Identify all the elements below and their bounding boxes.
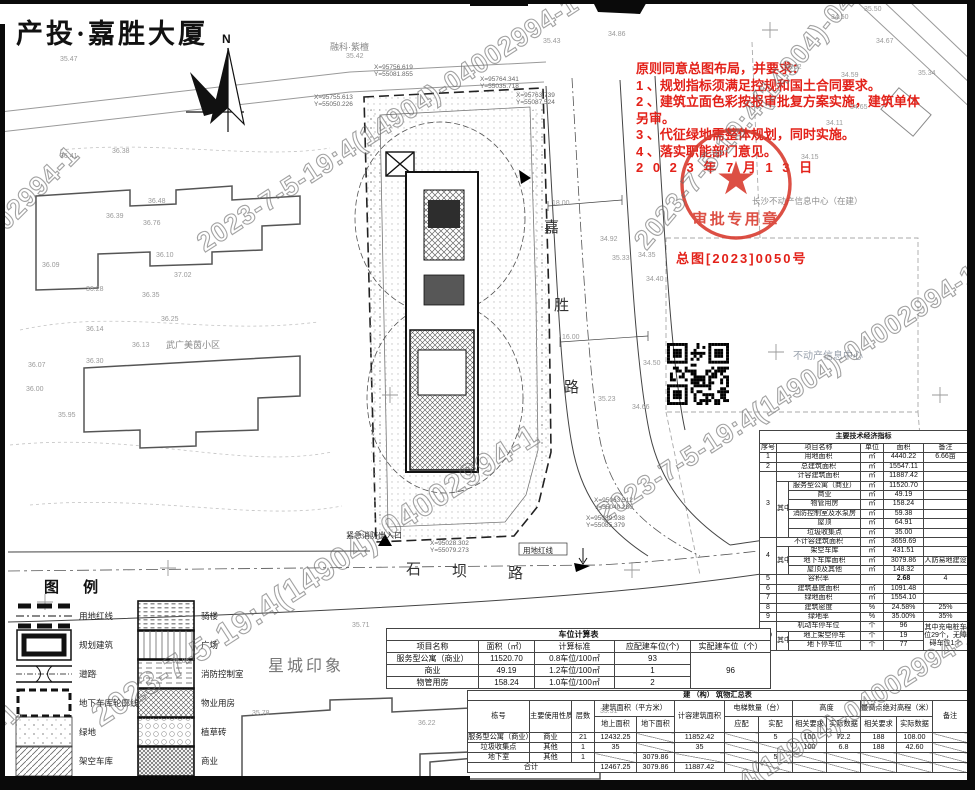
table-cell: 35% <box>924 613 968 622</box>
table-cell: 49.19 <box>479 665 535 677</box>
table-cell: 11852.42 <box>675 733 725 743</box>
table-cell: 11887.42 <box>675 763 725 773</box>
sheet-border-left <box>0 24 5 790</box>
table-row: 垃圾收集点㎡35.00 <box>760 528 968 537</box>
table-cell: 地下面积 <box>637 717 675 733</box>
table-cell: 合计 <box>468 763 595 773</box>
table-cell: ㎡ <box>861 509 884 518</box>
table-cell: 158.24 <box>479 677 535 689</box>
table-cell: 4 <box>924 575 968 584</box>
table-cell: 5 <box>759 753 793 763</box>
table-cell: 59.38 <box>884 509 924 518</box>
table-cell: 项目名称 <box>387 641 479 653</box>
legend-item-label: 植草砖 <box>201 726 227 738</box>
table-cell <box>637 733 675 743</box>
table-cell: 93 <box>615 653 691 665</box>
table-cell: 主要技术经济指标 <box>760 431 968 444</box>
indicator-table: 主要技术经济指标序号项目名称单位面积备注1用地面积㎡4440.226.66亩2总… <box>759 430 967 651</box>
table-cell: 35 <box>595 743 637 753</box>
table-cell: 应配建车位(个) <box>615 641 691 653</box>
legend: 图 例 用地红线规划建筑道路地下车库轮廓线绿地架空车库 骑楼广场消防控制室物业用… <box>14 576 252 775</box>
table-cell: ㎡ <box>861 584 884 593</box>
table-cell: 19 <box>884 631 924 640</box>
table-cell: 服务型公寓（商业） <box>468 733 530 743</box>
table-cell: 其他 <box>530 743 572 753</box>
legend-item-label: 规划建筑 <box>79 639 113 651</box>
table-cell: 相关要求 <box>861 717 897 733</box>
table-cell: 实际数据 <box>897 717 933 733</box>
table-cell: 188 <box>861 743 897 753</box>
table-cell <box>725 733 759 743</box>
table-cell: 高度 <box>793 701 861 717</box>
table-cell: 计算标准 <box>535 641 615 653</box>
table-cell: 建筑密度 <box>777 603 861 612</box>
table-cell: ㎡ <box>861 472 884 481</box>
table-cell: 1 <box>572 753 595 763</box>
table-cell: 垃圾收集点 <box>789 528 861 537</box>
table-row: 商业㎡49.19 <box>760 490 968 499</box>
table-cell: 个 <box>861 631 884 640</box>
legend-item-label: 地下车库轮廓线 <box>79 697 139 709</box>
approval-line: 1 、规划指标须满足控规和国土合同要求。 <box>636 78 975 95</box>
table-cell: 11520.70 <box>884 481 924 490</box>
table-row: 主要技术经济指标 <box>760 431 968 444</box>
sheet-border-top <box>0 0 975 4</box>
table-cell: 3659.69 <box>884 537 924 546</box>
table-cell: 面积 <box>884 444 924 453</box>
table-cell: 4440.22 <box>884 453 924 462</box>
table-cell: ㎡ <box>861 547 884 556</box>
table-cell <box>725 763 759 773</box>
table-cell <box>793 763 827 773</box>
table-cell: 实际数据 <box>827 717 861 733</box>
table-cell: 24.58% <box>884 603 924 612</box>
table-cell: 层数 <box>572 701 595 733</box>
table-row: 车位计算表 <box>387 629 771 641</box>
table-row: 地下室其他13079.865 <box>468 753 968 763</box>
table-cell: 序号 <box>760 444 777 453</box>
table-row: 2总建筑面积㎡15547.11 <box>760 462 968 471</box>
table-row: 1用地面积㎡4440.226.66亩 <box>760 453 968 462</box>
table-cell: 商业 <box>789 490 861 499</box>
table-cell <box>924 594 968 603</box>
table-cell: 屋顶及其他 <box>789 566 861 575</box>
table-cell: 3079.86 <box>637 753 675 763</box>
table-cell: 77 <box>884 641 924 650</box>
site-area <box>355 88 648 564</box>
table-cell <box>933 733 968 743</box>
table-cell: 6 <box>760 584 777 593</box>
table-cell: 其中 <box>777 631 789 650</box>
table-cell: 屋顶 <box>789 519 861 528</box>
table-cell: 100 <box>793 743 827 753</box>
table-cell: 备注 <box>933 701 968 733</box>
table-cell: 地下室 <box>468 753 530 763</box>
table-row: 10机动车停车位个96其中充电桩车位29个，无障碍车位1个 <box>760 622 968 631</box>
table-cell <box>725 753 759 763</box>
table-cell: 消防控制室及水泵房 <box>789 509 861 518</box>
neighbor-left-label: 武广美茵小区 <box>166 338 220 351</box>
table-cell: 49.19 <box>884 490 924 499</box>
building-summary-table: 建 （构） 筑物汇总表栋号主要使用性质层数建筑面积（平方米）计容建筑面积电梯数量… <box>467 690 967 773</box>
table-cell: 面积（㎡） <box>479 641 535 653</box>
table-cell: ㎡ <box>861 519 884 528</box>
table-cell: 96 <box>884 622 924 631</box>
table-cell <box>924 500 968 509</box>
table-cell: 个 <box>861 622 884 631</box>
table-cell: 用地面积 <box>777 453 861 462</box>
table-cell: 地下停车位 <box>789 641 861 650</box>
table-cell: 15547.11 <box>884 462 924 471</box>
table-cell: 物管用房 <box>387 677 479 689</box>
table-cell <box>924 490 968 499</box>
table-cell: 1091.48 <box>884 584 924 593</box>
table-cell <box>924 584 968 593</box>
table-cell <box>725 743 759 753</box>
table-cell: 21 <box>572 733 595 743</box>
page-title: 产投·嘉胜大厦 <box>16 12 208 51</box>
table-cell: 2.68 <box>884 575 924 584</box>
table-row: 合计12467.253079.8611887.42 <box>468 763 968 773</box>
table-cell: % <box>861 603 884 612</box>
table-cell <box>759 743 793 753</box>
table-cell: 11887.42 <box>884 472 924 481</box>
table-cell: 3079.86 <box>637 763 675 773</box>
table-cell: 35 <box>675 743 725 753</box>
table-cell: 架空车库 <box>789 547 861 556</box>
table-cell: 42.60 <box>897 743 933 753</box>
table-row: 6建筑基底面积㎡1091.48 <box>760 584 968 593</box>
legend-swatch-icon <box>14 743 74 779</box>
table-cell <box>861 763 897 773</box>
table-cell: ㎡ <box>861 500 884 509</box>
table-cell: 96 <box>691 653 771 689</box>
table-cell <box>759 763 793 773</box>
table-cell: 商业 <box>530 733 572 743</box>
table-cell: 人防易地建设 <box>924 556 968 565</box>
table-cell <box>924 519 968 528</box>
approval-line: 2 、建筑立面色彩按报审批复方案实施，建筑单体 <box>636 94 975 111</box>
table-cell: 电梯数量（台） <box>725 701 793 717</box>
table-cell: 总建筑面积 <box>777 462 861 471</box>
table-cell: 158.24 <box>884 500 924 509</box>
table-cell: 垃圾收集点 <box>468 743 530 753</box>
table-cell <box>924 566 968 575</box>
table-cell: 35.00 <box>884 528 924 537</box>
table-cell: ㎡ <box>861 453 884 462</box>
legend-item-label: 道路 <box>79 668 96 680</box>
table-cell: 实配建车位（个） <box>691 641 771 653</box>
table-cell: 12467.25 <box>595 763 637 773</box>
table-cell <box>897 753 933 763</box>
table-cell <box>637 743 675 753</box>
table-cell: 6.8 <box>827 743 861 753</box>
legend-item-label: 绿地 <box>79 726 96 738</box>
table-cell <box>924 509 968 518</box>
table-cell: 商业 <box>387 665 479 677</box>
table-cell: 1.0车位/100㎡ <box>535 677 615 689</box>
table-cell: 个 <box>861 641 884 650</box>
table-row: 3计容建筑面积㎡11887.42 <box>760 472 968 481</box>
table-cell <box>924 462 968 471</box>
table-cell: 12432.25 <box>595 733 637 743</box>
legend-item: 商业 <box>136 746 252 775</box>
qr-code <box>667 343 729 405</box>
table-cell <box>827 753 861 763</box>
table-cell: 100 <box>793 733 827 743</box>
table-cell: 实配 <box>759 717 793 733</box>
table-cell <box>861 753 897 763</box>
table-cell <box>897 763 933 773</box>
site-plan-document: { "title": "产投·嘉胜大厦", "watermark_text": … <box>0 0 975 790</box>
table-cell: 地上面积 <box>595 717 637 733</box>
table-cell <box>924 528 968 537</box>
table-cell: 1554.10 <box>884 594 924 603</box>
north-label: N <box>222 32 231 46</box>
table-cell: 1 <box>615 665 691 677</box>
table-row: 地下车库面积㎡3079.86人防易地建设 <box>760 556 968 565</box>
legend-item: 架空车库 <box>14 746 136 775</box>
table-cell: 7 <box>760 594 777 603</box>
table-cell: 25% <box>924 603 968 612</box>
stamp-star-icon: ★ <box>715 152 756 204</box>
table-cell: 建筑基底面积 <box>777 584 861 593</box>
neighbor-top-label: 融科·紫檀 <box>330 40 369 53</box>
table-cell <box>924 537 968 546</box>
table-row: 垃圾收集点其他135351006.818842.60 <box>468 743 968 753</box>
neighbor-bottom-label: 星城印象 <box>268 652 344 676</box>
table-cell: 容积率 <box>777 575 861 584</box>
table-cell: 5 <box>760 575 777 584</box>
table-cell: 148.32 <box>884 566 924 575</box>
table-cell: 431.51 <box>884 547 924 556</box>
sheet-border-bottom-thick <box>0 776 470 790</box>
table-cell: 项目名称 <box>777 444 861 453</box>
table-cell: 3079.86 <box>884 556 924 565</box>
table-cell: ㎡ <box>861 490 884 499</box>
legend-item-label: 商业 <box>201 755 218 767</box>
table-row: 屋顶及其他㎡148.32 <box>760 566 968 575</box>
table-cell: 机动车停车位 <box>777 622 861 631</box>
table-cell: 计容建筑面积 <box>675 701 725 733</box>
table-cell: 不计容建筑面积 <box>777 537 861 546</box>
table-cell: 11520.70 <box>479 653 535 665</box>
table-row: 其中架空车库㎡431.51 <box>760 547 968 556</box>
table-row: 其中服务型公寓（商业）㎡11520.70 <box>760 481 968 490</box>
table-cell: 1 <box>572 743 595 753</box>
table-cell <box>933 753 968 763</box>
legend-item-label: 物业用房 <box>201 697 235 709</box>
table-cell: ㎡ <box>861 566 884 575</box>
table-cell: 栋号 <box>468 701 530 733</box>
table-cell <box>675 753 725 763</box>
legend-item-label: 广场 <box>201 639 218 651</box>
table-cell <box>827 763 861 773</box>
table-row: 建 （构） 筑物汇总表 <box>468 691 968 701</box>
legend-item-label: 骑楼 <box>201 610 218 622</box>
legend-swatch-icon <box>136 743 196 779</box>
table-cell: 绿地面积 <box>777 594 861 603</box>
table-row: 物管用房㎡158.24 <box>760 500 968 509</box>
table-cell <box>924 481 968 490</box>
table-cell: 备注 <box>924 444 968 453</box>
table-row: 服务型公寓（商业）商业2112432.2511852.42510072.2188… <box>468 733 968 743</box>
table-cell <box>793 753 827 763</box>
table-cell: 绿地率 <box>777 613 861 622</box>
table-row: 序号项目名称单位面积备注 <box>760 444 968 453</box>
table-cell: 相关要求 <box>793 717 827 733</box>
table-row: 8建筑密度%24.58%25% <box>760 603 968 612</box>
parking-table: 车位计算表项目名称面积（㎡）计算标准应配建车位(个)实配建车位（个）服务型公寓（… <box>386 628 770 689</box>
table-cell: 地上架空停车 <box>789 631 861 640</box>
legend-item-label: 架空车库 <box>79 755 113 767</box>
approval-stamp: ★ 审批专用章 <box>660 118 816 258</box>
table-cell: % <box>861 613 884 622</box>
table-cell: 9 <box>760 613 777 622</box>
table-cell: 物管用房 <box>789 500 861 509</box>
table-cell <box>595 753 637 763</box>
sheet-border-right <box>967 0 975 790</box>
table-cell: ㎡ <box>861 594 884 603</box>
table-row: 消防控制室及水泵房㎡59.38 <box>760 509 968 518</box>
info-center-label: 不动产信息中心 <box>793 347 863 362</box>
table-cell: ㎡ <box>861 528 884 537</box>
table-cell: 单位 <box>861 444 884 453</box>
approval-line: 原则同意总图布局，并要求： <box>636 61 975 78</box>
table-cell: ㎡ <box>861 556 884 565</box>
table-cell: 服务型公寓（商业） <box>789 481 861 490</box>
table-cell: 108.00 <box>897 733 933 743</box>
table-cell <box>924 472 968 481</box>
table-cell: 其中充电桩车位29个，无障碍车位1个 <box>924 622 968 650</box>
table-cell: 建筑面积（平方米） <box>595 701 675 717</box>
emergency-exit-label: 紧急消防出入口 <box>346 530 402 541</box>
red-line-label: 用地红线 <box>523 545 553 556</box>
table-cell: ㎡ <box>861 537 884 546</box>
table-cell: 其中 <box>777 547 789 575</box>
table-cell: 地下车库面积 <box>789 556 861 565</box>
table-row: 服务型公寓（商业）11520.700.8车位/100㎡9396 <box>387 653 771 665</box>
table-cell: 35.00% <box>884 613 924 622</box>
table-cell: 8 <box>760 603 777 612</box>
table-cell: 4 <box>760 537 777 575</box>
table-cell: 1 <box>760 453 777 462</box>
table-cell: 188 <box>861 733 897 743</box>
table-cell: 其中 <box>777 481 789 537</box>
legend-item-label: 用地红线 <box>79 610 113 622</box>
table-cell: 服务型公寓（商业） <box>387 653 479 665</box>
table-row: 4不计容建筑面积㎡3659.69 <box>760 537 968 546</box>
stamp-text: 审批专用章 <box>692 210 780 228</box>
table-cell: ㎡ <box>861 462 884 471</box>
table-cell: 6.66亩 <box>924 453 968 462</box>
table-cell <box>861 575 884 584</box>
legend-title: 图 例 <box>44 576 252 597</box>
table-cell: 2 <box>760 462 777 471</box>
table-row: 9绿地率%35.00%35% <box>760 613 968 622</box>
table-cell: 5 <box>759 733 793 743</box>
table-cell: 其他 <box>530 753 572 763</box>
table-cell: ㎡ <box>861 481 884 490</box>
table-cell <box>924 547 968 556</box>
table-cell: 建 （构） 筑物汇总表 <box>468 691 968 701</box>
table-cell: 1.2车位/100㎡ <box>535 665 615 677</box>
table-cell: 64.91 <box>884 519 924 528</box>
table-cell: 主要使用性质 <box>530 701 572 733</box>
table-cell: 计容建筑面积 <box>777 472 861 481</box>
table-cell <box>933 763 968 773</box>
table-row: 栋号主要使用性质层数建筑面积（平方米）计容建筑面积电梯数量（台）高度最高点绝对高… <box>468 701 968 717</box>
table-row: 5容积率2.684 <box>760 575 968 584</box>
table-cell: 3 <box>760 472 777 538</box>
table-cell: 应配 <box>725 717 759 733</box>
legend-item-label: 消防控制室 <box>201 668 244 680</box>
table-cell: 车位计算表 <box>387 629 771 641</box>
table-cell: 最高点绝对高程（米） <box>861 701 933 717</box>
table-cell: 2 <box>615 677 691 689</box>
table-cell <box>933 743 968 753</box>
table-row: 7绿地面积㎡1554.10 <box>760 594 968 603</box>
table-row: 项目名称面积（㎡）计算标准应配建车位(个)实配建车位（个） <box>387 641 771 653</box>
table-cell: 72.2 <box>827 733 861 743</box>
table-cell: 0.8车位/100㎡ <box>535 653 615 665</box>
table-row: 屋顶㎡64.91 <box>760 519 968 528</box>
